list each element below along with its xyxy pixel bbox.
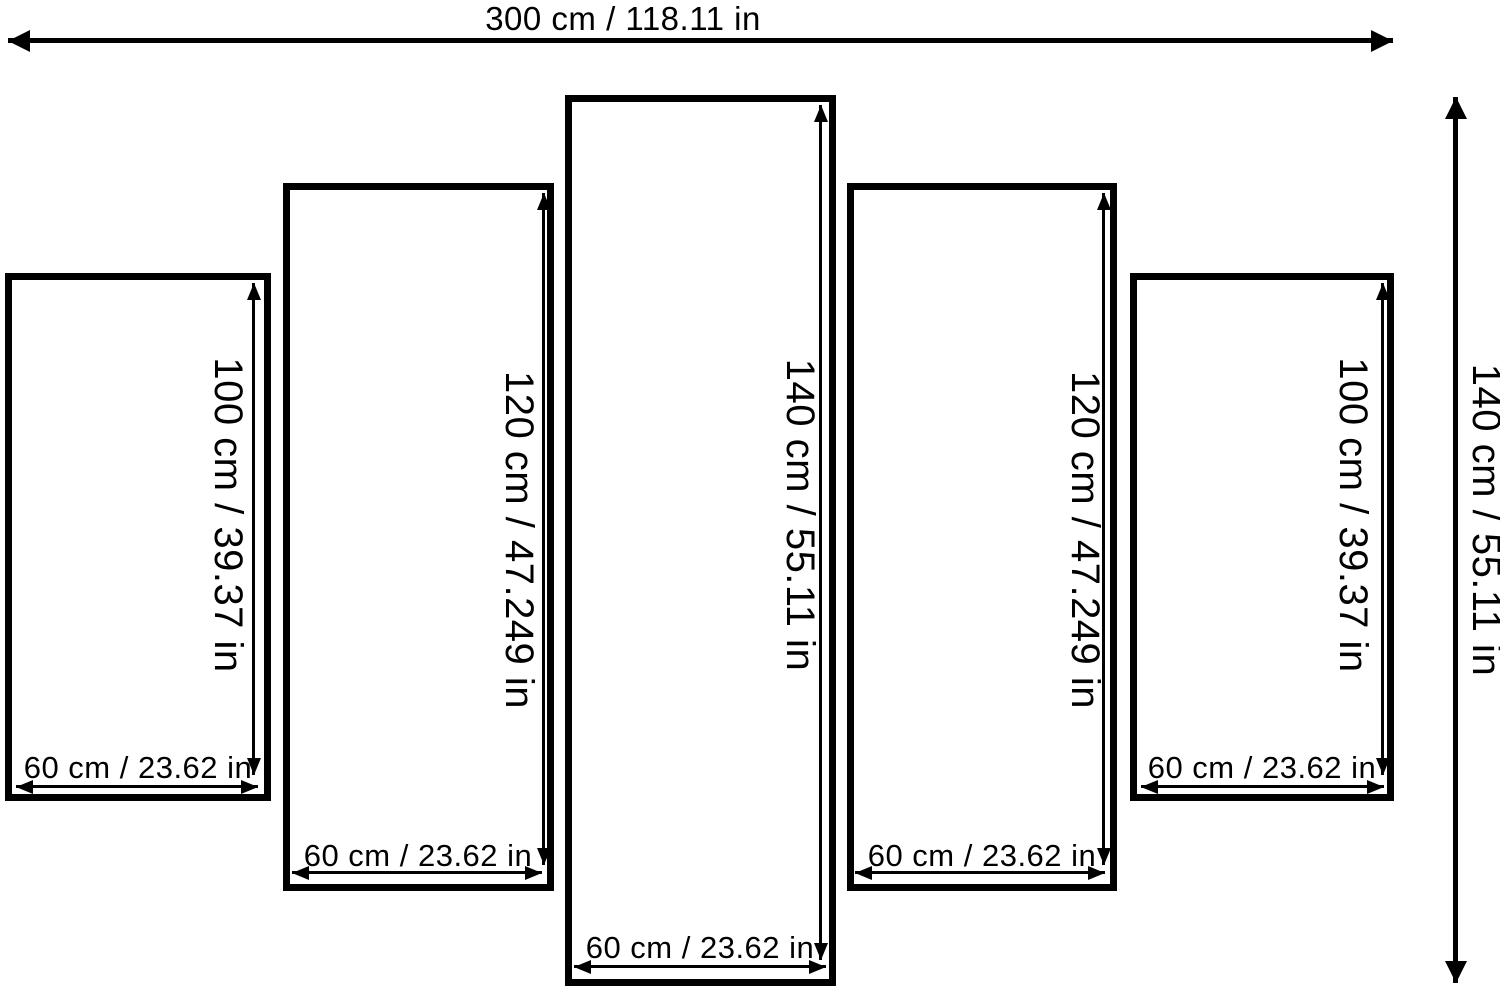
panel-4-height-label: 120 cm / 47.249 in xyxy=(1065,371,1105,709)
panel-3-width-arrow xyxy=(574,965,826,968)
panel-1-height-label: 100 cm / 39.37 in xyxy=(208,357,248,672)
panel-4-width-label: 60 cm / 23.62 in xyxy=(868,840,1097,872)
panel-3-width-label: 60 cm / 23.62 in xyxy=(586,932,815,964)
overall-width-dimension-arrow xyxy=(8,38,1393,43)
panel-5-height-arrow xyxy=(1381,283,1384,775)
panel-2-height-label: 120 cm / 47.249 in xyxy=(499,371,539,709)
panel-5-width-label: 60 cm / 23.62 in xyxy=(1148,752,1377,784)
panel-2-width-label: 60 cm / 23.62 in xyxy=(304,840,533,872)
panel-2-width-arrow xyxy=(292,871,542,874)
overall-height-dimension-arrow xyxy=(1453,97,1458,983)
overall-height-label: 140 cm / 55.11 in xyxy=(1466,364,1500,676)
panel-2-height-arrow xyxy=(542,193,545,865)
panel-1-height-arrow xyxy=(252,283,255,775)
overall-width-label: 300 cm / 118.11 in xyxy=(485,2,761,36)
panel-1-width-label: 60 cm / 23.62 in xyxy=(24,752,253,784)
panel-4-width-arrow xyxy=(855,871,1105,874)
panel-1-width-arrow xyxy=(16,785,258,788)
panel-5-height-label: 100 cm / 39.37 in xyxy=(1333,357,1373,672)
panel-3-height-label: 140 cm / 55.11 in xyxy=(780,359,820,671)
panel-5-width-arrow xyxy=(1141,785,1384,788)
panel-dimensions-diagram: 300 cm / 118.11 in 140 cm / 55.11 in 100… xyxy=(0,0,1500,988)
